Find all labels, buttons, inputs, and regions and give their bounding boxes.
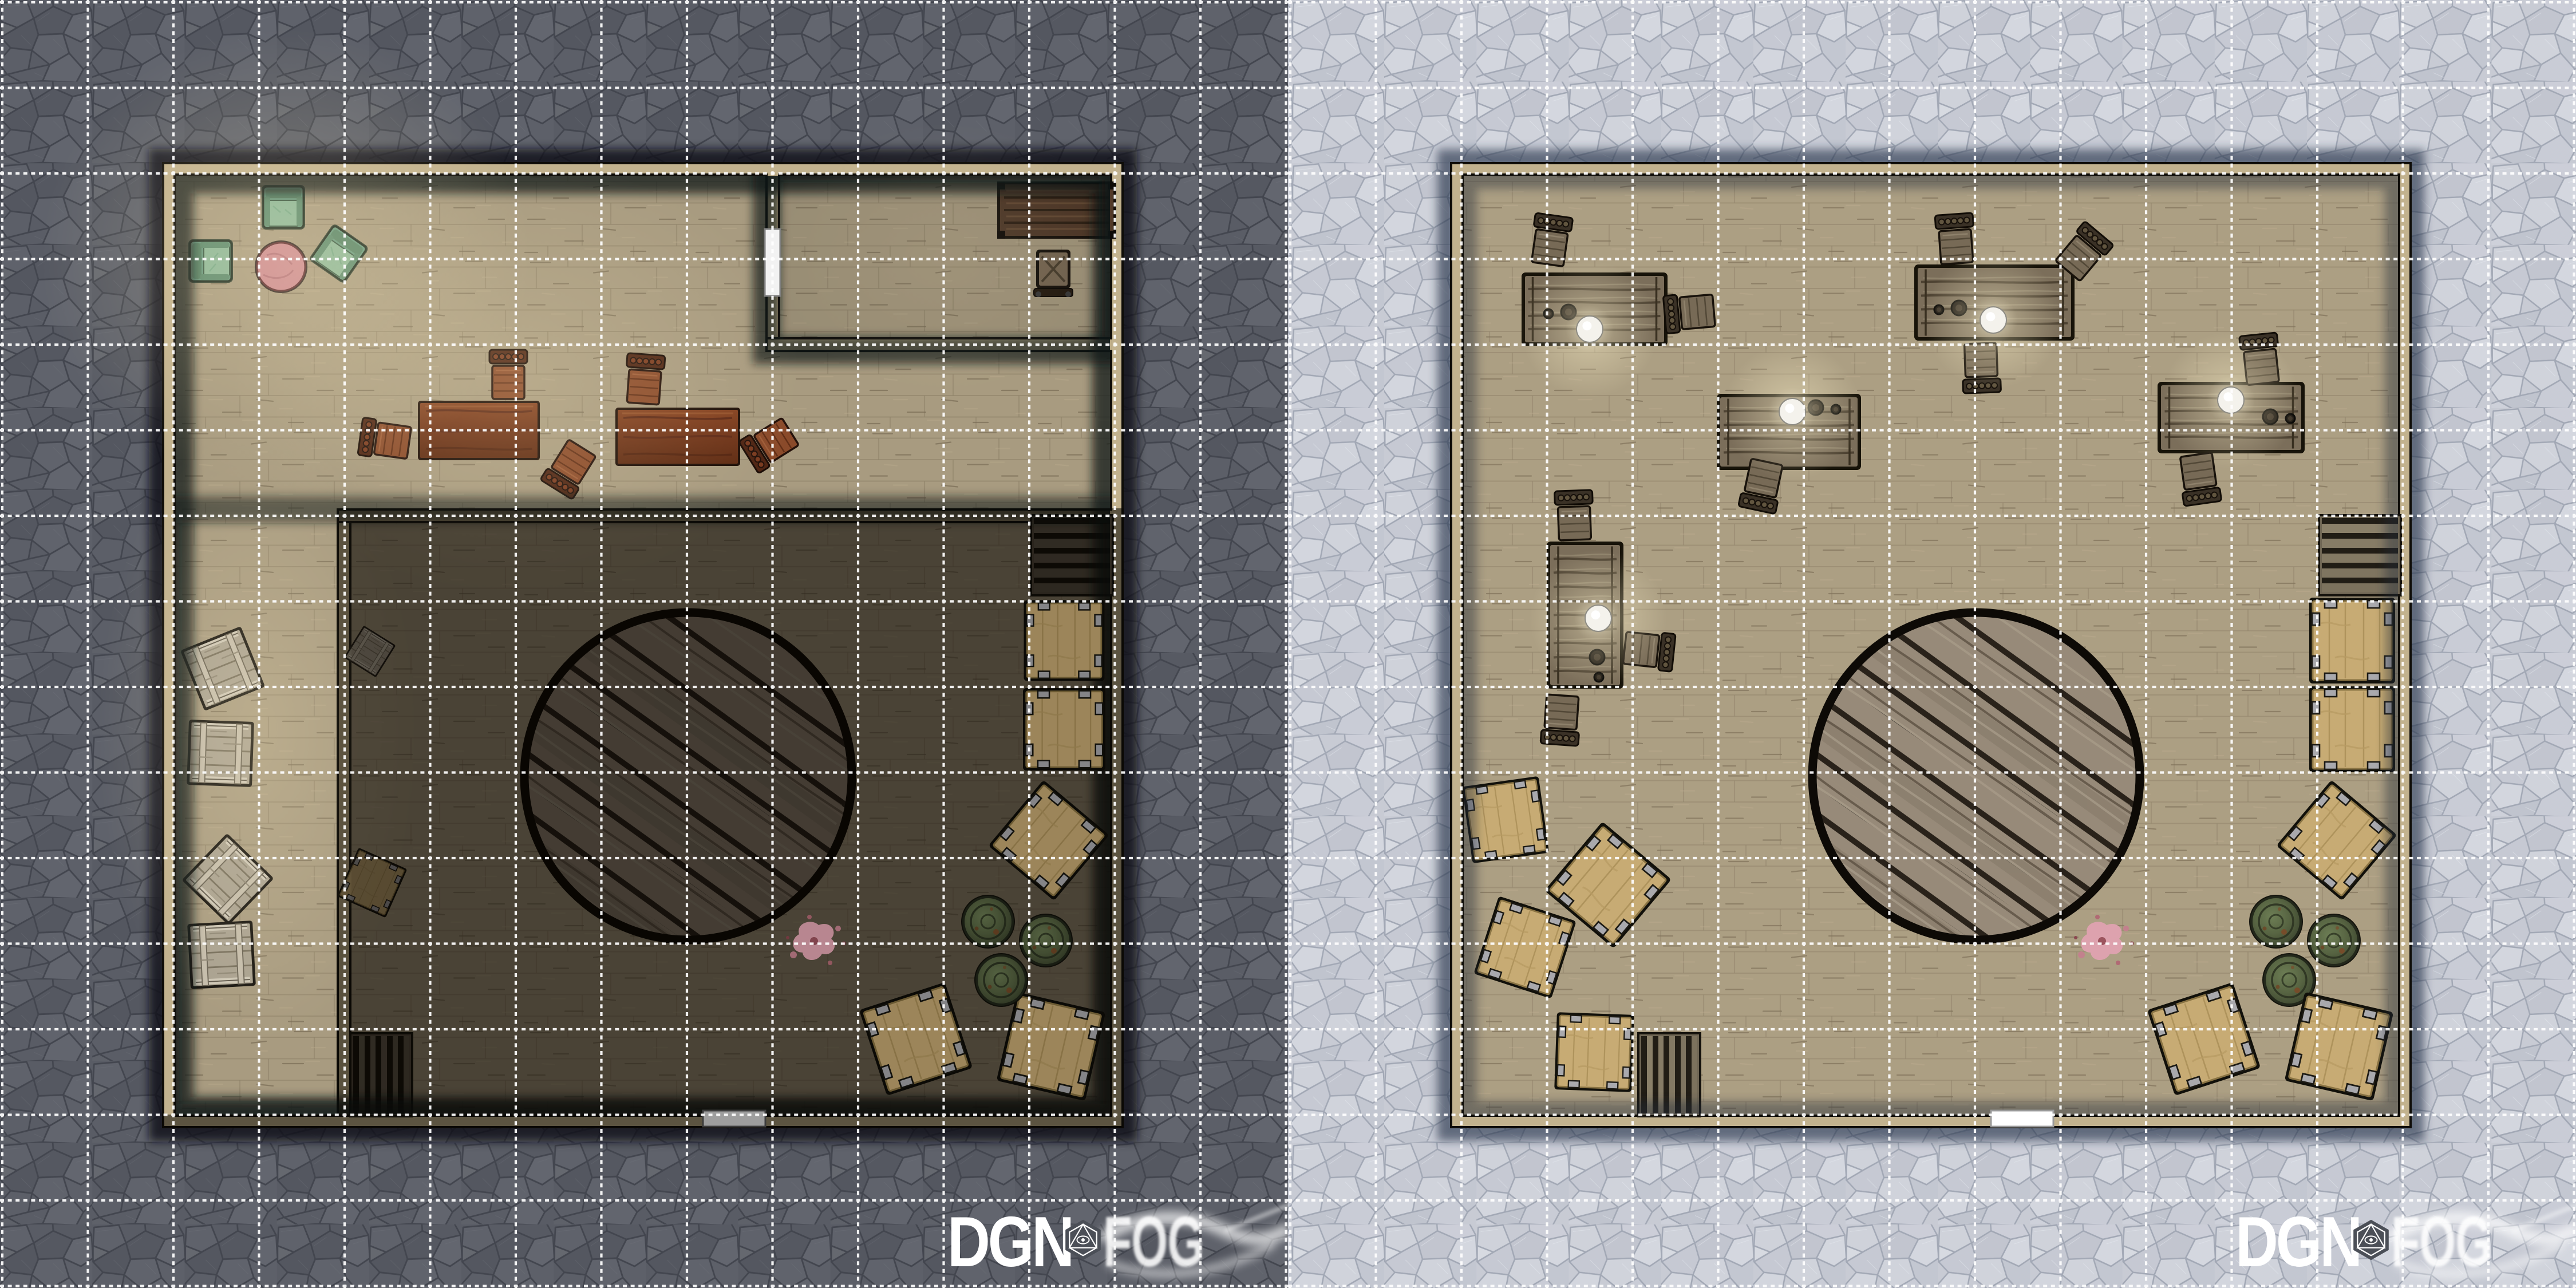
svg-text:FOG: FOG [2391, 1203, 2491, 1282]
svg-text:FOG: FOG [1103, 1203, 1203, 1282]
svg-text:DGN: DGN [947, 1203, 1072, 1282]
svg-text:DGN: DGN [2235, 1203, 2360, 1282]
